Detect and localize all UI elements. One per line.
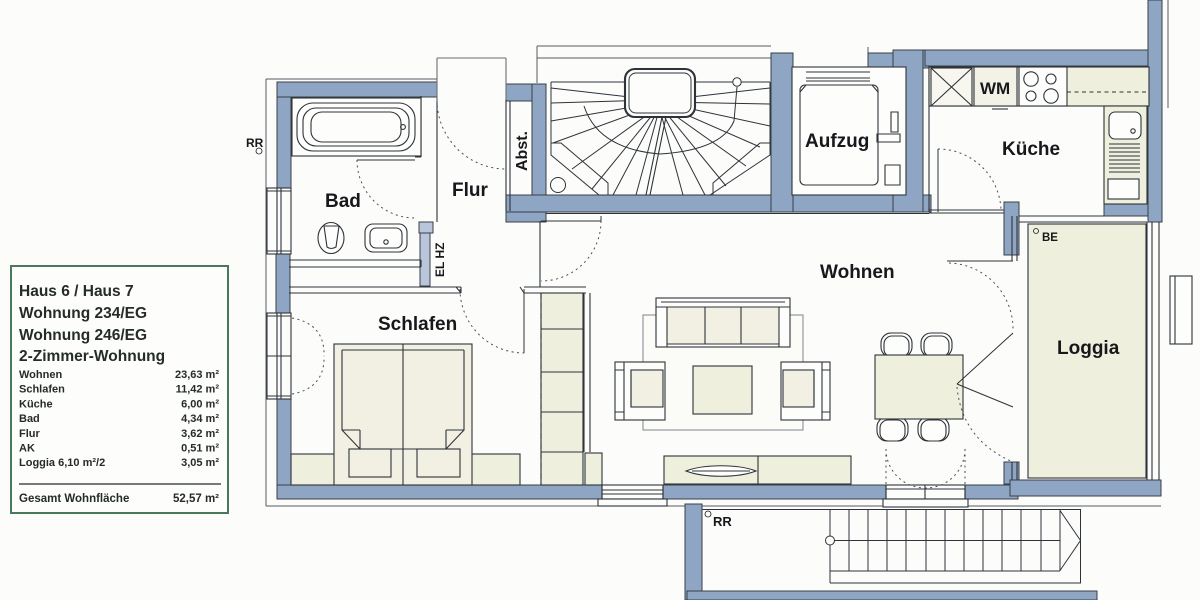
svg-text:Bad: Bad xyxy=(19,413,40,425)
svg-text:RR: RR xyxy=(713,514,732,529)
svg-text:0,51 m²: 0,51 m² xyxy=(181,443,219,455)
svg-text:Haus 6 / Haus 7: Haus 6 / Haus 7 xyxy=(19,283,134,300)
svg-text:Aufzug: Aufzug xyxy=(805,131,869,152)
svg-text:3,62 m²: 3,62 m² xyxy=(181,428,219,440)
svg-text:Flur: Flur xyxy=(452,180,488,201)
svg-text:Schlafen: Schlafen xyxy=(378,314,457,335)
svg-text:52,57 m²: 52,57 m² xyxy=(173,493,219,505)
svg-text:Abst.: Abst. xyxy=(514,131,531,171)
svg-text:Bad: Bad xyxy=(325,191,361,212)
svg-text:Wohnung 234/EG: Wohnung 234/EG xyxy=(19,305,147,322)
svg-text:Schlafen: Schlafen xyxy=(19,384,65,396)
svg-text:EL HZ: EL HZ xyxy=(433,243,447,277)
svg-text:Wohnung 246/EG: Wohnung 246/EG xyxy=(19,327,147,344)
svg-text:Wohnen: Wohnen xyxy=(820,262,895,283)
svg-text:Küche: Küche xyxy=(1002,139,1060,160)
svg-text:WM: WM xyxy=(980,79,1010,98)
svg-text:3,05 m²: 3,05 m² xyxy=(181,457,219,469)
svg-text:Wohnen: Wohnen xyxy=(19,369,62,381)
svg-text:RR: RR xyxy=(246,136,264,150)
svg-text:Küche: Küche xyxy=(19,398,53,410)
svg-text:Loggia: Loggia xyxy=(1057,338,1120,359)
svg-text:6,00 m²: 6,00 m² xyxy=(181,398,219,410)
svg-text:Loggia 6,10 m²/2: Loggia 6,10 m²/2 xyxy=(19,457,105,469)
svg-text:Flur: Flur xyxy=(19,428,40,440)
svg-text:Gesamt Wohnfläche: Gesamt Wohnfläche xyxy=(19,493,129,505)
svg-text:11,42 m²: 11,42 m² xyxy=(176,384,220,396)
svg-text:AK: AK xyxy=(19,443,35,455)
svg-text:BE: BE xyxy=(1042,232,1058,244)
svg-text:4,34 m²: 4,34 m² xyxy=(181,413,219,425)
svg-text:2-Zimmer-Wohnung: 2-Zimmer-Wohnung xyxy=(19,348,165,365)
svg-text:23,63 m²: 23,63 m² xyxy=(175,369,219,381)
